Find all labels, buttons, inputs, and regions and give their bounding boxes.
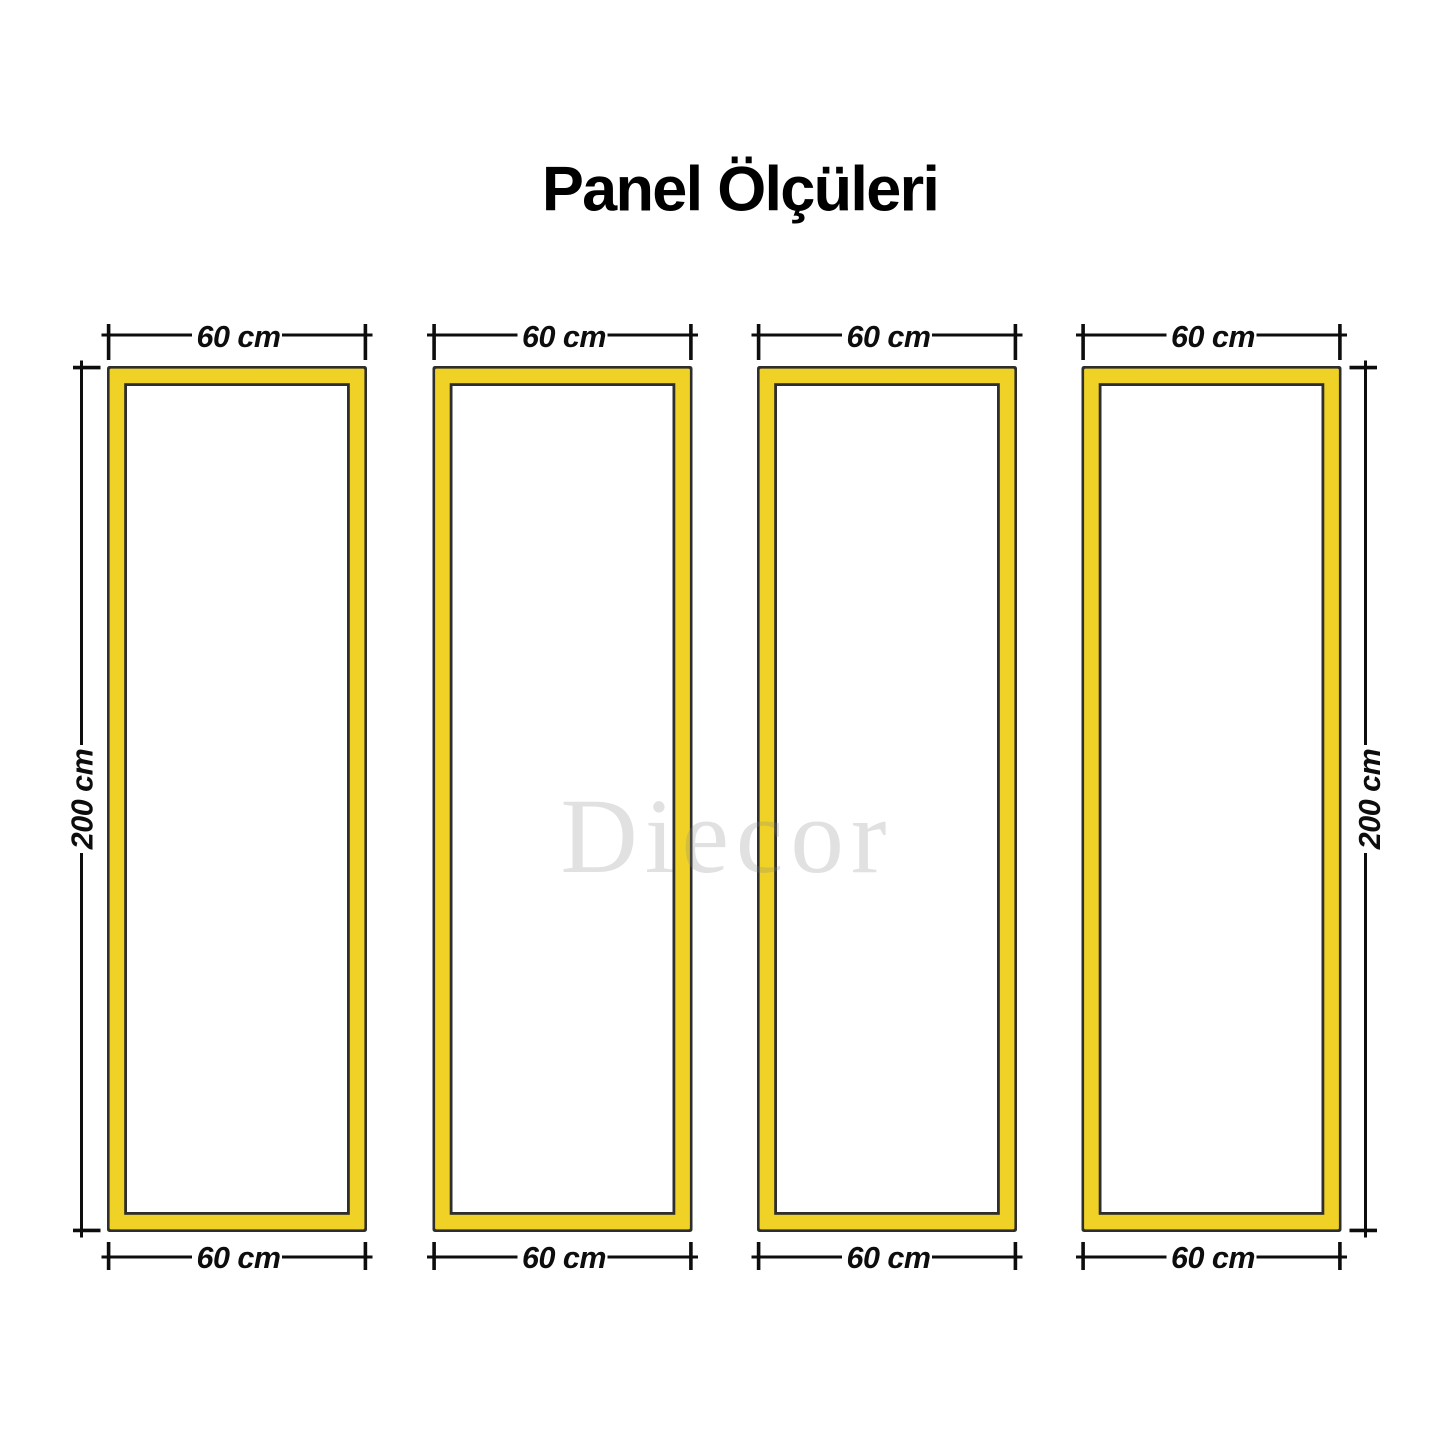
svg-text:200 cm: 200 cm [66, 749, 100, 850]
svg-text:200 cm: 200 cm [1353, 749, 1387, 850]
svg-text:60 cm: 60 cm [1171, 320, 1255, 354]
svg-text:60 cm: 60 cm [197, 1241, 281, 1275]
svg-text:60 cm: 60 cm [847, 320, 931, 354]
svg-text:60 cm: 60 cm [847, 1241, 931, 1275]
svg-text:60 cm: 60 cm [522, 320, 606, 354]
svg-text:60 cm: 60 cm [1171, 1241, 1255, 1275]
svg-text:60 cm: 60 cm [522, 1241, 606, 1275]
svg-text:60 cm: 60 cm [197, 320, 281, 354]
svg-text:Panel Ölçüleri: Panel Ölçüleri [542, 155, 938, 225]
svg-text:Diecor: Diecor [560, 778, 893, 896]
